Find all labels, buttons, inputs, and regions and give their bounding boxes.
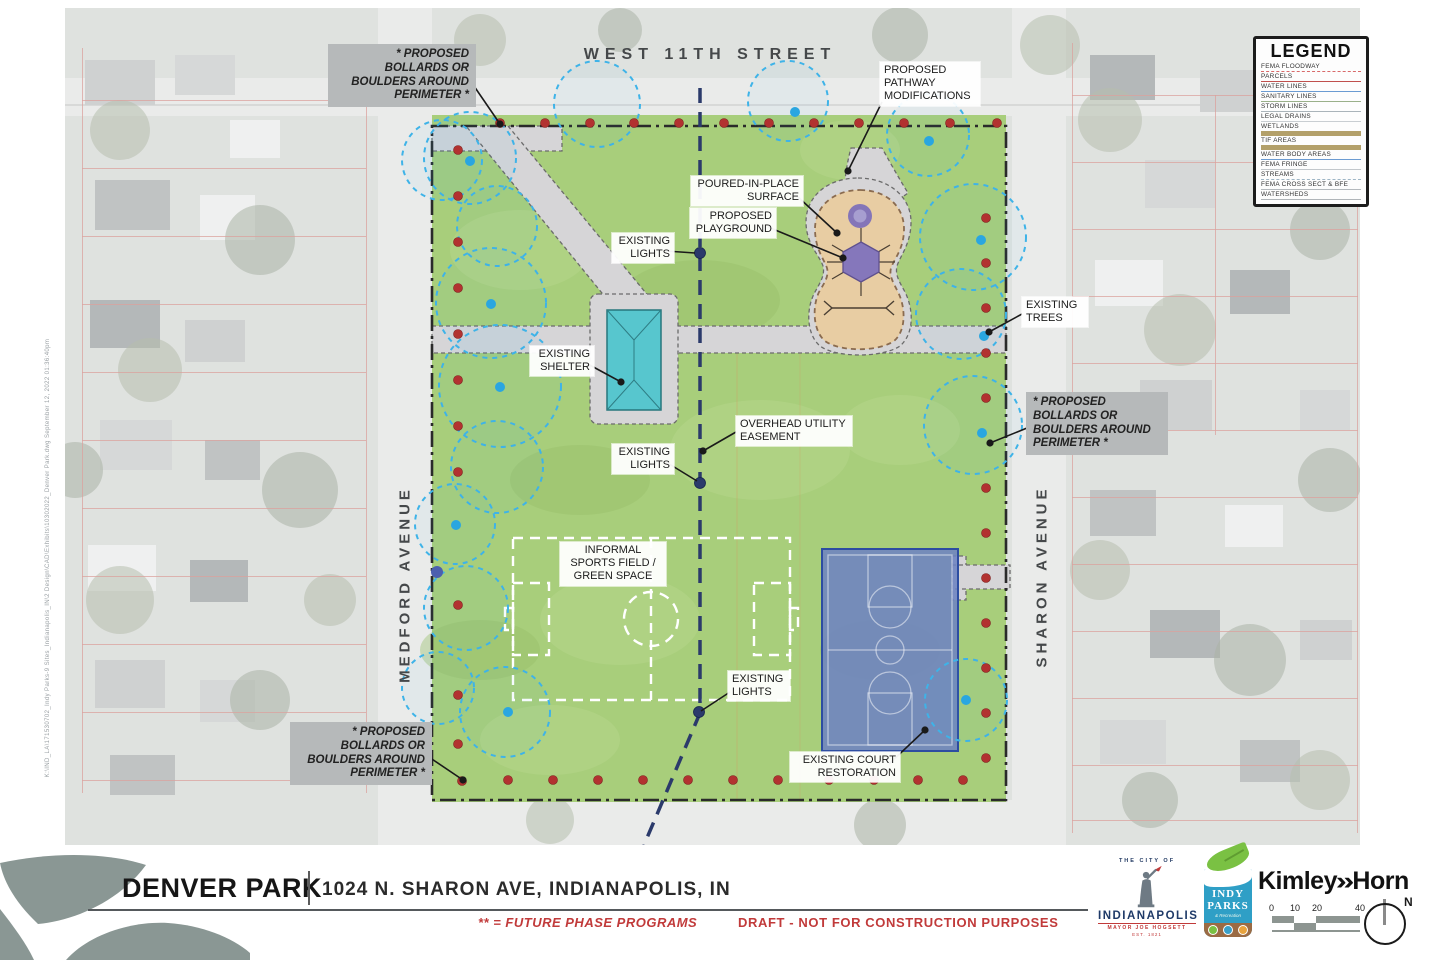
park-name: DENVER PARK bbox=[122, 873, 322, 904]
indy-parks-line1: INDY bbox=[1204, 889, 1252, 901]
scale-label: 10 bbox=[1290, 903, 1300, 913]
chevron-icon: » bbox=[1336, 867, 1354, 896]
legend-title: LEGEND bbox=[1256, 41, 1366, 62]
north-label: N bbox=[1404, 895, 1413, 909]
annotation-existing-lights-2: EXISTING LIGHTS bbox=[612, 444, 674, 474]
north-arrow: N bbox=[1362, 895, 1418, 945]
city-logo-mayor: MAYOR JOE HOGSETT bbox=[1098, 925, 1196, 931]
annotation-bollards-bottom: * PROPOSED BOLLARDS OR BOULDERS AROUND P… bbox=[290, 722, 432, 785]
legend-item: LEGAL DRAINS bbox=[1256, 112, 1366, 122]
title-rule bbox=[88, 909, 1088, 911]
north-circle bbox=[1364, 903, 1406, 945]
future-phase-note: ** = FUTURE PHASE PROGRAMS bbox=[478, 915, 697, 930]
legend-item: STREAMS bbox=[1256, 170, 1366, 180]
city-of-indianapolis-logo: THE CITY OF INDIANAPOLIS MAYOR JOE HOGSE… bbox=[1098, 858, 1196, 958]
city-logo-arc-text: THE CITY OF bbox=[1098, 858, 1196, 864]
legend-item: WATER LINES bbox=[1256, 82, 1366, 92]
annotation-court-restoration: EXISTING COURT RESTORATION bbox=[790, 752, 900, 782]
indy-parks-card: INDY PARKS & Recreation bbox=[1204, 869, 1252, 937]
park-address: 1024 N. SHARON AVE, INDIANAPOLIS, IN bbox=[322, 879, 731, 901]
legend-item: WETLANDS bbox=[1256, 122, 1366, 136]
indy-parks-logo: INDY PARKS & Recreation bbox=[1202, 855, 1254, 951]
indy-parks-line3: & Recreation bbox=[1204, 913, 1252, 918]
street-label-medford: MEDFORD AVENUE bbox=[397, 475, 414, 695]
plan-sheet: WEST 11TH STREET MEDFORD AVENUE SHARON A… bbox=[0, 0, 1440, 960]
scale-label: 20 bbox=[1312, 903, 1322, 913]
legend-item: FEMA FRINGE bbox=[1256, 160, 1366, 170]
annotation-sports-field: INFORMAL SPORTS FIELD / GREEN SPACE bbox=[560, 542, 666, 586]
indy-parks-band bbox=[1204, 923, 1252, 937]
scale-bar: 0102040 bbox=[1272, 903, 1362, 939]
scale-bar-segments bbox=[1272, 916, 1360, 932]
city-logo-est: EST. 1821 bbox=[1098, 932, 1196, 937]
legend: LEGEND FEMA FLOODWAYPARCELSWATER LINESSA… bbox=[1253, 36, 1369, 207]
kimley-horn-wordmark: Kimley»Horn bbox=[1258, 867, 1409, 896]
indy-parks-line2: PARKS bbox=[1204, 901, 1252, 913]
legend-item: SANITARY LINES bbox=[1256, 92, 1366, 102]
legend-item: TIF AREAS bbox=[1256, 136, 1366, 150]
annotation-existing-lights-1: EXISTING LIGHTS bbox=[612, 233, 674, 263]
file-path-note: K:\IND_LA\171530702_Indy Parks-9 Sites_I… bbox=[45, 278, 51, 838]
legend-item: WATERSHEDS bbox=[1256, 190, 1366, 200]
legend-item: WATER BODY AREAS bbox=[1256, 150, 1366, 160]
legend-item: PARCELS bbox=[1256, 72, 1366, 82]
title-bar: DENVER PARK 1024 N. SHARON AVE, INDIANAP… bbox=[0, 845, 1440, 960]
annotation-proposed-playground: PROPOSED PLAYGROUND bbox=[690, 208, 776, 238]
annotation-overhead-easement: OVERHEAD UTILITY EASEMENT bbox=[736, 416, 852, 446]
annotation-poured-in-place: POURED-IN-PLACE SURFACE bbox=[691, 176, 803, 206]
annotation-existing-lights-3: EXISTING LIGHTS bbox=[728, 671, 790, 701]
annotation-pathway-modifications: PROPOSED PATHWAY MODIFICATIONS bbox=[880, 62, 980, 106]
title-divider bbox=[308, 871, 310, 905]
legend-item: FEMA CROSS SECT & BFE bbox=[1256, 180, 1366, 190]
legend-item: FEMA FLOODWAY bbox=[1256, 62, 1366, 72]
statue-icon bbox=[1127, 864, 1167, 910]
annotation-existing-shelter: EXISTING SHELTER bbox=[530, 346, 594, 376]
street-label-west-11th: WEST 11TH STREET bbox=[540, 46, 880, 64]
annotation-bollards-right: * PROPOSED BOLLARDS OR BOULDERS AROUND P… bbox=[1026, 392, 1168, 455]
scale-label: 0 bbox=[1269, 903, 1274, 913]
draft-disclaimer: DRAFT - NOT FOR CONSTRUCTION PURPOSES bbox=[738, 915, 1058, 930]
annotation-bollards-top: * PROPOSED BOLLARDS OR BOULDERS AROUND P… bbox=[328, 44, 476, 107]
city-logo-name: INDIANAPOLIS bbox=[1098, 910, 1196, 924]
legend-item: STORM LINES bbox=[1256, 102, 1366, 112]
annotation-existing-trees: EXISTING TREES bbox=[1022, 297, 1088, 327]
street-label-sharon: SHARON AVENUE bbox=[1034, 477, 1051, 677]
